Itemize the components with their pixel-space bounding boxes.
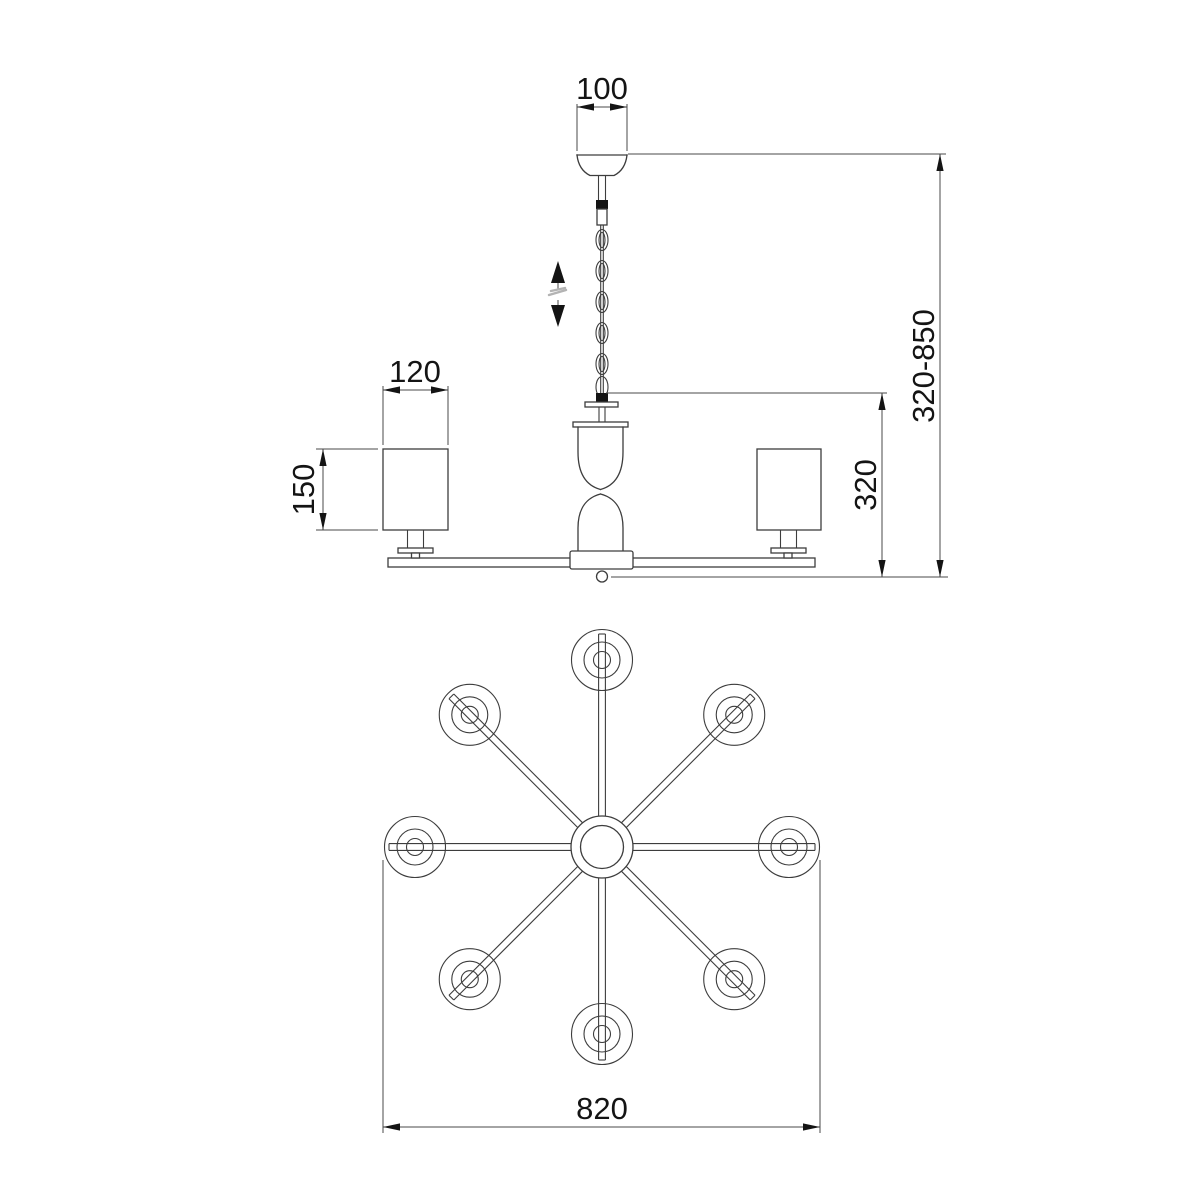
shade-width-label: 120 bbox=[389, 354, 441, 389]
arrow-up-icon bbox=[936, 154, 943, 171]
bottom-plan-view: 820 bbox=[383, 630, 820, 1134]
dim-canopy-width: 100 bbox=[576, 71, 628, 151]
height-adjustment-arrows bbox=[549, 261, 566, 327]
dim-shade-width: 120 bbox=[383, 354, 448, 445]
plan-light-ne bbox=[602, 672, 777, 847]
plan-light-w bbox=[385, 817, 572, 878]
shade-height-label: 150 bbox=[286, 464, 321, 516]
plan-light-nw bbox=[427, 672, 602, 847]
dim-body-height: 320 bbox=[606, 393, 887, 577]
chain-links bbox=[596, 230, 608, 398]
arrow-down-icon bbox=[878, 560, 885, 577]
drawing-canvas: 100 bbox=[0, 0, 1200, 1200]
finial-ball bbox=[597, 571, 608, 582]
left-lamp bbox=[383, 449, 448, 558]
canopy-width-label: 100 bbox=[576, 71, 628, 106]
arrow-up-icon bbox=[319, 449, 326, 466]
plan-center-hub bbox=[571, 816, 633, 878]
arrow-down-icon bbox=[551, 305, 565, 327]
plan-light-n bbox=[572, 630, 633, 817]
suspension-chain bbox=[596, 225, 608, 398]
arrow-down-icon bbox=[936, 560, 943, 577]
chandelier-dimension-drawing: 100 bbox=[0, 0, 1200, 1200]
arrow-up-icon bbox=[878, 393, 885, 410]
plan-light-s bbox=[572, 878, 633, 1065]
central-body bbox=[573, 422, 628, 552]
chain-hanger bbox=[585, 393, 618, 422]
side-elevation-view: 100 bbox=[286, 71, 948, 582]
body-height-label: 320 bbox=[848, 459, 883, 511]
arrow-right-icon bbox=[803, 1123, 820, 1130]
arrow-left-icon bbox=[383, 1123, 400, 1130]
ceiling-canopy bbox=[577, 155, 627, 225]
height-range-label: 320-850 bbox=[906, 309, 941, 423]
overall-diameter-label: 820 bbox=[576, 1091, 628, 1126]
left-shade bbox=[383, 449, 448, 530]
plan-light-e bbox=[633, 817, 820, 878]
right-lamp bbox=[757, 449, 821, 558]
plan-light-se bbox=[602, 847, 777, 1022]
dim-shade-height: 150 bbox=[286, 449, 378, 530]
arrow-up-icon bbox=[551, 261, 565, 283]
plan-light-sw bbox=[427, 847, 602, 1022]
right-shade bbox=[757, 449, 821, 530]
